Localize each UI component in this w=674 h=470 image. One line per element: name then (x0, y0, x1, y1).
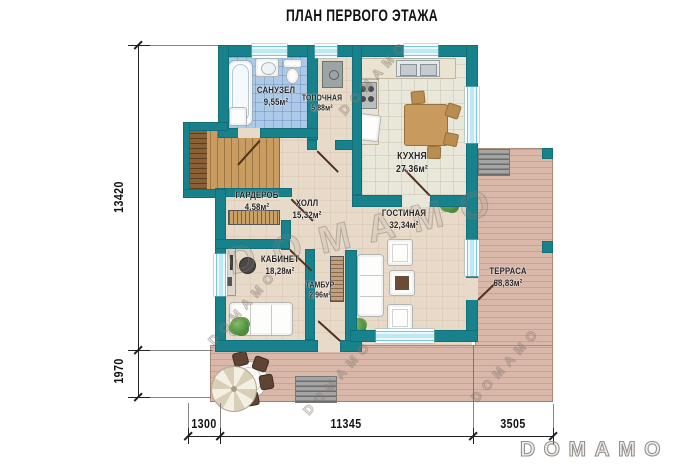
boiler-unit-icon (322, 61, 343, 88)
room-name: ТОПОЧНАЯ (302, 93, 342, 103)
room-name: ГАРДЕРОБ (235, 190, 278, 202)
window (376, 329, 434, 343)
terrace-steps (478, 149, 510, 176)
dimension-line (188, 436, 553, 437)
kitchen-sink-icon (396, 60, 440, 77)
staircase (188, 130, 280, 190)
room-name: КУХНЯ (396, 150, 428, 163)
door-opening (466, 278, 478, 300)
extension-line (220, 403, 221, 429)
living-sofa (357, 254, 384, 317)
room-label-kitchen: КУХНЯ 27,36м² (393, 150, 432, 176)
wall-segment (183, 189, 217, 198)
room-area: 9,55м² (257, 97, 295, 109)
terrace-post (542, 148, 553, 159)
window (252, 44, 287, 58)
coffee-table (389, 270, 415, 296)
dimension-line (138, 45, 139, 398)
toilet-icon (283, 59, 302, 68)
room-label-boiler: ТОПОЧНАЯ 5,88м² (297, 93, 346, 114)
dining-chair (410, 90, 425, 104)
room-name: ГОСТИНАЯ (382, 208, 426, 220)
room-area: 18,28м² (261, 266, 299, 278)
bathroom-sink-icon (255, 58, 279, 77)
dim-left-total: 13420 (112, 181, 126, 213)
door-opening (238, 128, 260, 138)
dim-bottom-middle: 11345 (330, 417, 361, 431)
room-label-bathroom: САНУЗЕЛ 9,55м² (253, 85, 300, 109)
extension-line (139, 45, 218, 46)
room-name: ТАМБУР (306, 280, 335, 290)
extension-line (473, 345, 474, 429)
room-label-terrace: ТЕРРАСА 68,83м² (485, 266, 531, 290)
domamo-logo: DOMAMO (520, 438, 669, 462)
wall-segment (215, 340, 318, 352)
room-label-wardrobe: ГАРДЕРОБ 4,58м² (231, 190, 284, 214)
wall-segment (352, 45, 362, 195)
room-area: 2,96м² (306, 290, 335, 300)
room-name: САНУЗЕЛ (257, 85, 295, 97)
dining-chair (443, 132, 459, 148)
floor-plan-canvas: DOMAMO DOMAMO DOMAMO DOMAMO DOMAMO САНУЗ… (0, 0, 674, 470)
window (315, 44, 337, 58)
terrace-post (542, 241, 553, 253)
room-name: ХОЛЛ (292, 198, 321, 210)
toilet-bowl-icon (286, 68, 299, 84)
room-label-living: ГОСТИНАЯ 32,34м² (377, 208, 431, 232)
room-area: 27,36м² (396, 163, 428, 176)
room-name: КАБИНЕТ (261, 254, 299, 266)
room-label-hall: ХОЛЛ 15,32м² (289, 198, 324, 222)
extension-line (188, 403, 189, 429)
door-opening (318, 340, 340, 352)
room-area: 5,88м² (302, 103, 342, 113)
wall-segment (183, 122, 190, 198)
room-area: 32,34м² (382, 220, 426, 232)
room-area: 68,83м² (489, 278, 526, 290)
room-area: 4,58м² (235, 202, 278, 214)
wall-segment (260, 128, 318, 138)
dim-left-lower: 1970 (112, 358, 126, 383)
dim-bottom-right: 3505 (500, 417, 525, 431)
patio-umbrella (211, 366, 257, 412)
room-area: 15,32м² (292, 210, 321, 222)
wall-segment (345, 250, 357, 342)
extension-line (553, 404, 554, 429)
patio-chair (258, 373, 274, 390)
dimension-tick (128, 397, 150, 398)
door-opening (317, 140, 335, 150)
dining-table (404, 104, 448, 146)
extension-line (139, 350, 213, 351)
dim-bottom-left: 1300 (191, 417, 216, 431)
dimension-tick (128, 350, 150, 351)
shower-tray-icon (229, 107, 247, 126)
window (465, 87, 479, 143)
room-name: ТЕРРАСА (489, 266, 526, 278)
dimension-tick (128, 45, 150, 46)
wall-segment (307, 140, 317, 150)
window (465, 240, 479, 276)
room-label-tambour: ТАМБУР 2,96м² (302, 280, 337, 301)
armchair (387, 304, 413, 331)
window (214, 254, 227, 296)
room-label-office: КАБИНЕТ 18,28м² (257, 254, 304, 278)
page-title: ПЛАН ПЕРВОГО ЭТАЖА (286, 6, 438, 26)
